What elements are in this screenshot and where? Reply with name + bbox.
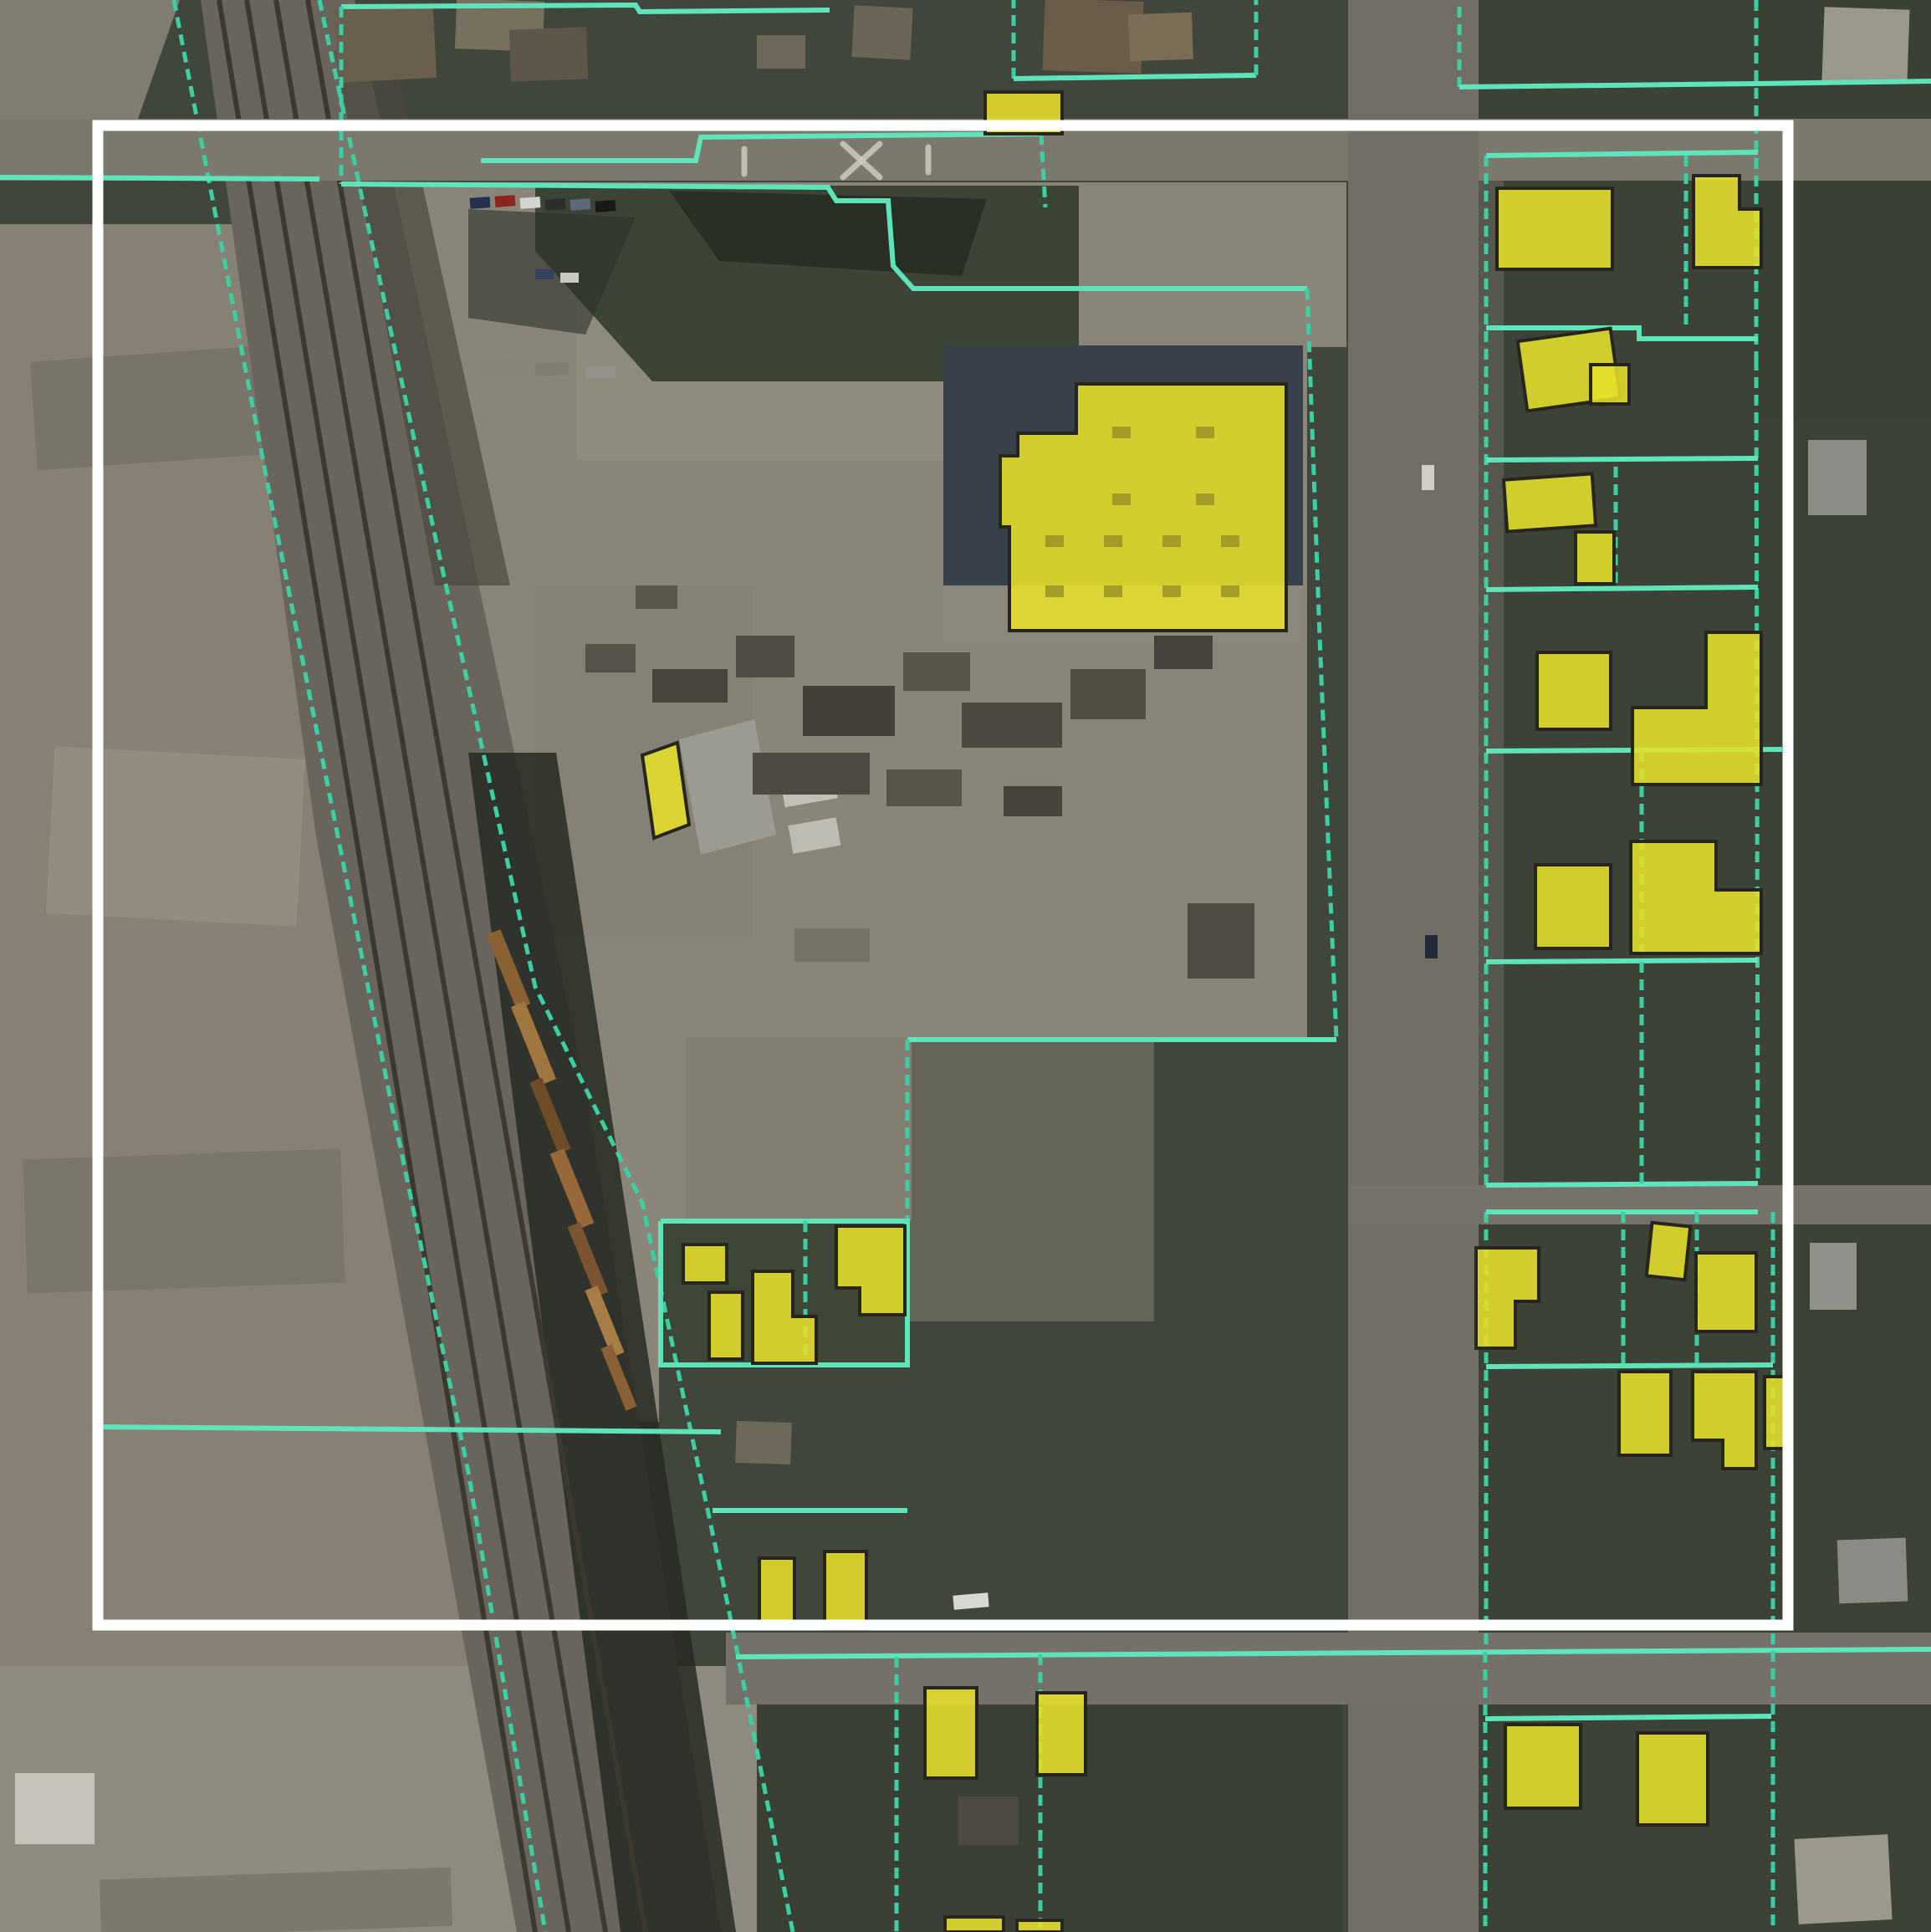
yard-debris-13 xyxy=(1188,903,1254,979)
parcel-boundary-rightcol-div-3[interactable] xyxy=(1486,458,1758,460)
truck-11 xyxy=(585,365,616,378)
footprint-bottomright-b[interactable] xyxy=(1637,1733,1708,1825)
yard-debris-11 xyxy=(1004,786,1062,816)
roof-vent-11 xyxy=(1112,493,1131,505)
yard-debris-3 xyxy=(736,636,794,677)
footprint-row7-house-w[interactable] xyxy=(1619,1372,1671,1455)
aerial-map-canvas[interactable] xyxy=(0,0,1931,1932)
parcel-boundary-boundary-left-of-extent[interactable] xyxy=(0,177,319,179)
roof-vent-10 xyxy=(1196,427,1214,438)
car-13 xyxy=(1422,465,1434,490)
parcel-boundary-bottomright-lot-line[interactable] xyxy=(1485,1716,1771,1719)
car-4 xyxy=(545,198,566,211)
roof-vent-1 xyxy=(1045,535,1064,547)
yard-debris-4 xyxy=(803,686,895,736)
car-5 xyxy=(570,198,591,211)
footprint-bottomright-a[interactable] xyxy=(1505,1725,1581,1808)
roof-vent-8 xyxy=(1221,585,1239,597)
roof-vent-12 xyxy=(1196,493,1214,505)
roof-vent-6 xyxy=(1104,585,1122,597)
footprint-row2-shed[interactable] xyxy=(1591,365,1629,404)
footprint-row4-house-w[interactable] xyxy=(1537,652,1611,729)
footprint-cluster-house-a[interactable] xyxy=(709,1292,743,1359)
footprint-row5-house-w[interactable] xyxy=(1535,865,1611,948)
street-bottom xyxy=(726,1633,1931,1705)
roof-house-topleft-1 xyxy=(335,4,437,83)
yard-debris-8 xyxy=(1154,636,1213,669)
roof-house-right-out-3 xyxy=(1837,1538,1908,1604)
roof-shed-cluster xyxy=(735,1421,792,1464)
parcel-boundary-topright-lot-south[interactable] xyxy=(1459,84,1756,87)
roof-vent-2 xyxy=(1104,535,1122,547)
roof-house-top-4 xyxy=(1043,0,1144,74)
car-1 xyxy=(470,197,491,209)
roof-house-right-out-2 xyxy=(1810,1243,1857,1310)
footprint-row1-house-w[interactable] xyxy=(1497,188,1612,269)
street-east-west-right xyxy=(1348,1185,1931,1224)
footprint-cluster-shed[interactable] xyxy=(683,1245,727,1283)
truck-9 xyxy=(481,359,520,374)
roof-vent-9 xyxy=(1112,427,1131,438)
roof-house-top-5 xyxy=(1128,13,1193,62)
alley-right-column xyxy=(1479,181,1504,1185)
footprint-row6-shed[interactable] xyxy=(1647,1223,1690,1280)
parcel-boundary-rightcol-div-6[interactable] xyxy=(1486,960,1758,962)
roof-shed-top-center xyxy=(757,35,805,69)
yard-debris-2 xyxy=(652,669,728,703)
roof-vent-7 xyxy=(1162,585,1181,597)
car-6 xyxy=(595,200,616,212)
roof-vent-4 xyxy=(1221,535,1239,547)
footprint-bottom-edge-a[interactable] xyxy=(945,1917,1004,1932)
roof-house-right-out-1 xyxy=(1808,440,1867,515)
truck-10 xyxy=(535,362,569,376)
concrete-pad-bright xyxy=(15,1773,95,1844)
roof-vent-5 xyxy=(1045,585,1064,597)
footprint-row3-garage[interactable] xyxy=(1576,532,1614,584)
parcel-boundary-top-lot-c-south[interactable] xyxy=(1014,75,1256,79)
dirt-streak-2 xyxy=(46,746,305,926)
yard-debris-1 xyxy=(585,644,636,672)
footprint-below-street-b[interactable] xyxy=(1037,1693,1086,1775)
footprint-row3-house[interactable] xyxy=(1504,473,1596,531)
car-8 xyxy=(560,273,579,283)
map-viewport xyxy=(0,0,1931,1932)
footprint-row6-house-e[interactable] xyxy=(1696,1253,1756,1331)
roof-shed-bottom-center xyxy=(958,1797,1019,1845)
roof-house-topleft-3 xyxy=(509,27,588,81)
footprint-bottom-center-a[interactable] xyxy=(825,1551,866,1629)
car-7 xyxy=(535,269,554,279)
parcel-boundary-rightcol-div-7[interactable] xyxy=(1486,1183,1758,1185)
yard-debris-14 xyxy=(794,928,870,962)
footprint-bottom-edge-b[interactable] xyxy=(1017,1920,1062,1932)
parcel-boundary-rightcol-div-1[interactable] xyxy=(1486,152,1758,156)
car-3 xyxy=(520,197,541,209)
roof-house-topright-out xyxy=(1821,7,1909,84)
parcel-boundary-rightcol-div-9[interactable] xyxy=(1486,1365,1773,1367)
roof-house-top-center xyxy=(851,5,912,60)
parcel-boundary-rightcol-div-4[interactable] xyxy=(1486,587,1758,590)
dirt-streak-3 xyxy=(23,1148,345,1293)
yard-debris-12 xyxy=(636,585,677,609)
roof-vent-3 xyxy=(1162,535,1181,547)
yard-debris-10 xyxy=(886,769,962,806)
parcel-boundary-topright-lot-east[interactable] xyxy=(1756,81,1931,84)
yard-debris-7 xyxy=(1070,669,1146,719)
yard-debris-6 xyxy=(962,703,1062,748)
yard-debris-5 xyxy=(903,652,970,691)
footprint-bottom-center-b[interactable] xyxy=(759,1558,794,1623)
car-14 xyxy=(1425,935,1438,958)
roof-house-bottomright-out xyxy=(1794,1834,1892,1924)
yard-debris-9 xyxy=(753,753,870,795)
car-2 xyxy=(495,195,516,207)
footprint-below-street-a[interactable] xyxy=(925,1688,977,1778)
